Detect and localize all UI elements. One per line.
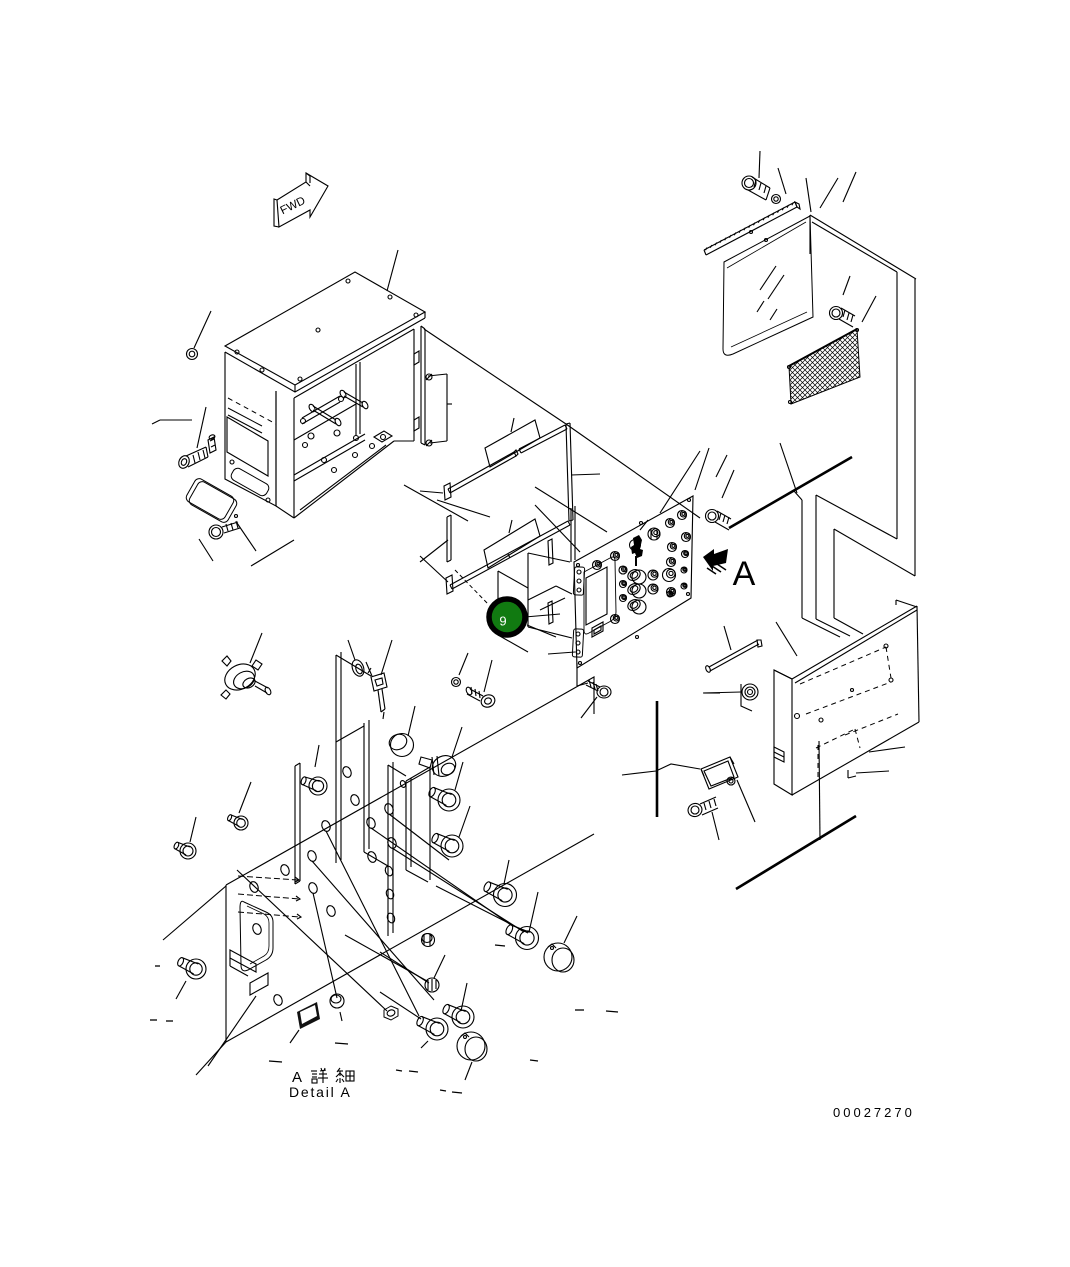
svg-text:9: 9 <box>499 613 506 628</box>
svg-text:A: A <box>733 555 756 593</box>
svg-text:Detail A: Detail A <box>289 1084 352 1100</box>
svg-text:00027270: 00027270 <box>833 1105 915 1120</box>
